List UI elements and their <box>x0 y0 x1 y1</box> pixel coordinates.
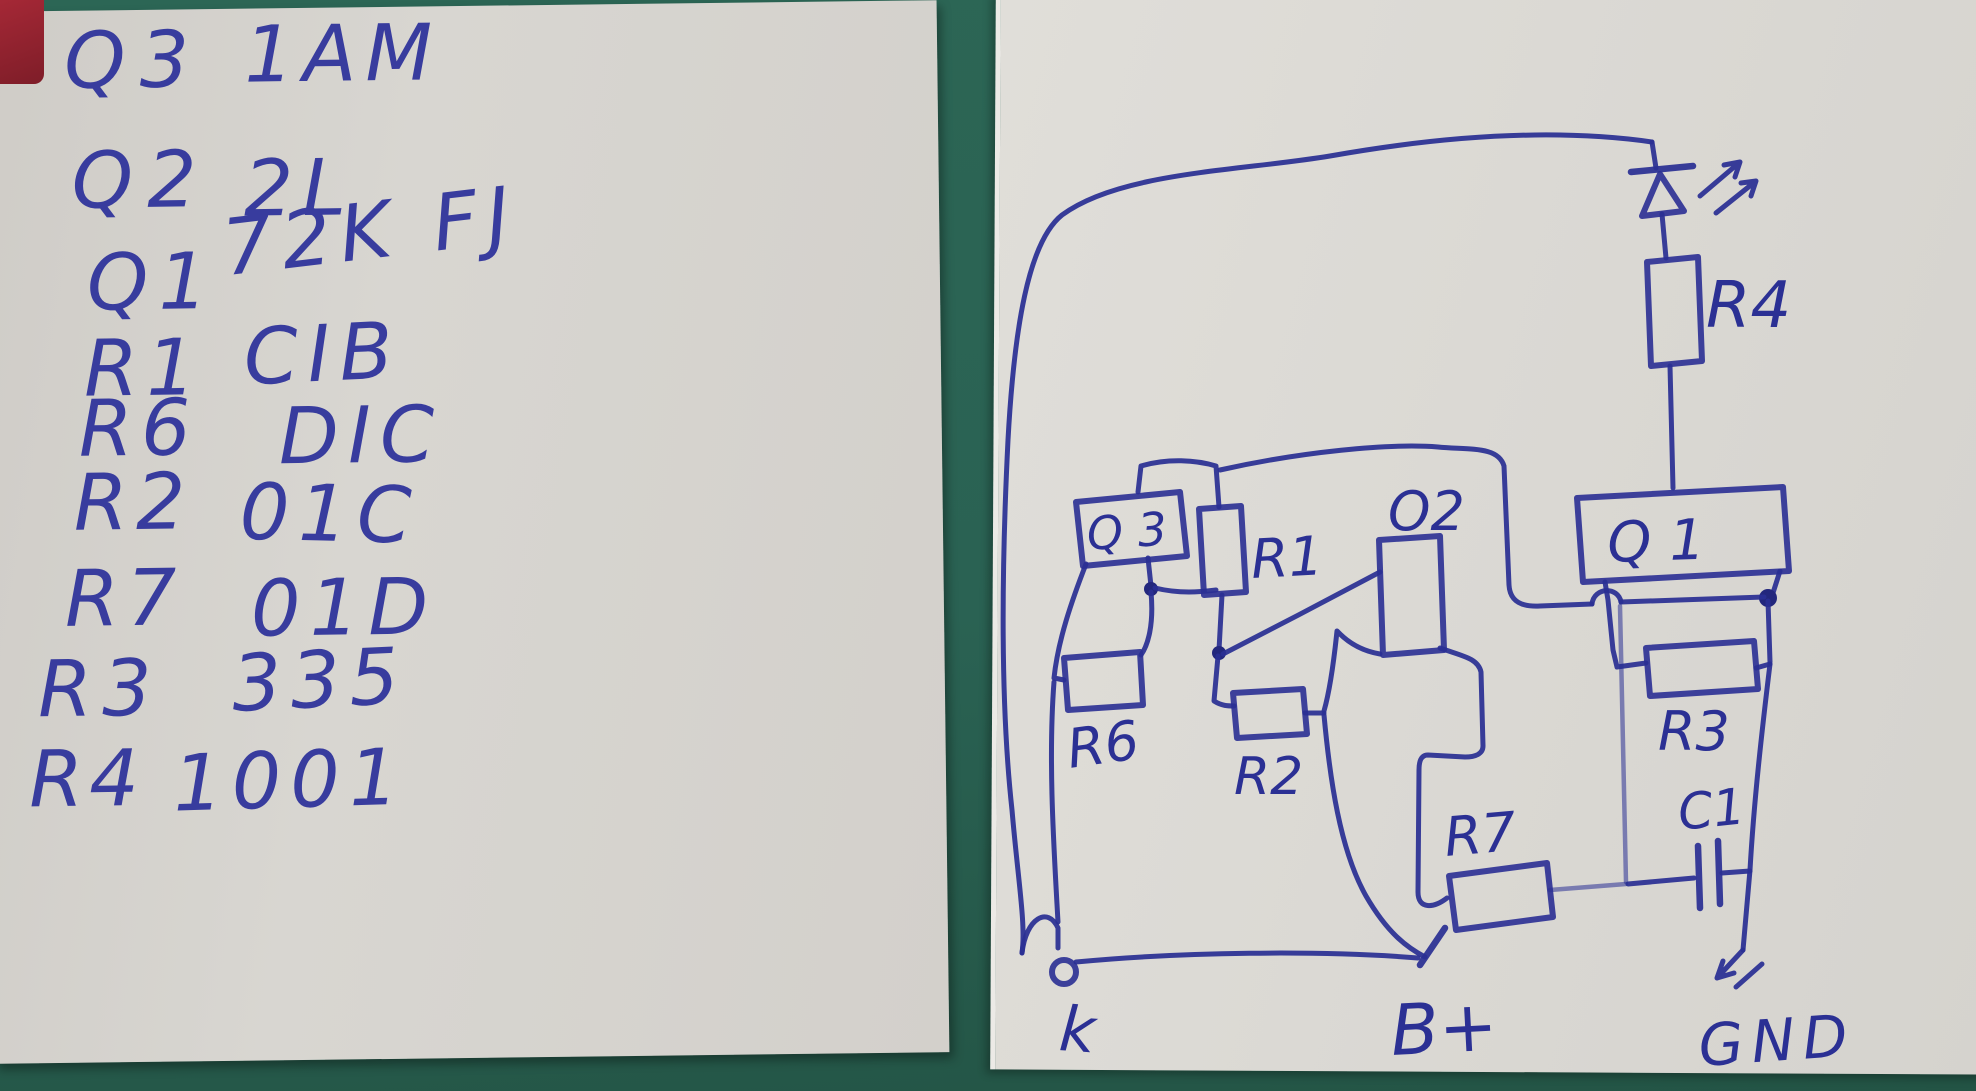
r7-resistor: R7 <box>1442 800 1626 930</box>
r3-label: R3 <box>1658 700 1730 763</box>
r3-resistor: R3 <box>1646 641 1770 763</box>
q2-label: O2 <box>1388 480 1465 543</box>
k-terminal-label: k <box>1057 992 1100 1067</box>
k-terminal: k <box>1057 992 1100 1067</box>
b-plus-terminal: B+ <box>1389 928 1500 1072</box>
r4-label: R4 <box>1706 269 1791 343</box>
r6-resistor: R6 <box>1051 564 1143 922</box>
photo-scene: Q3 1AM Q2 2L Q1 72K FJ R1 CIB R6 DIC R2 … <box>0 0 1976 1091</box>
r4-resistor: R4 <box>1647 257 1791 488</box>
led-symbol <box>1631 142 1756 258</box>
q3-transistor-box: Q 3 <box>1076 461 1219 655</box>
gnd-terminal: GND <box>1696 1001 1857 1080</box>
r7-label: R7 <box>1442 800 1519 869</box>
c1-label: C1 <box>1675 777 1747 842</box>
q1-label: Q 1 <box>1606 508 1706 576</box>
gnd-terminal-label: GND <box>1696 1001 1857 1080</box>
bottom-wire <box>1052 953 1418 984</box>
r2-label: R2 <box>1234 747 1303 807</box>
r2-resistor: R2 <box>1233 631 1425 957</box>
q1-transistor-box: Q 1 <box>1577 487 1789 667</box>
led-emission-arrows <box>1700 162 1756 213</box>
collector-feedback-wire <box>1620 606 1626 882</box>
circuit-schematic: R4 Q 1 Q 3 R1 <box>0 0 1976 1091</box>
b-plus-terminal-label: B+ <box>1389 985 1500 1072</box>
r1-resistor: R1 <box>1199 506 1380 706</box>
q3-label: Q 3 <box>1085 502 1169 561</box>
r6-label: R6 <box>1063 708 1143 780</box>
r1-label: R1 <box>1249 524 1324 591</box>
c1-capacitor: C1 <box>1628 777 1750 908</box>
